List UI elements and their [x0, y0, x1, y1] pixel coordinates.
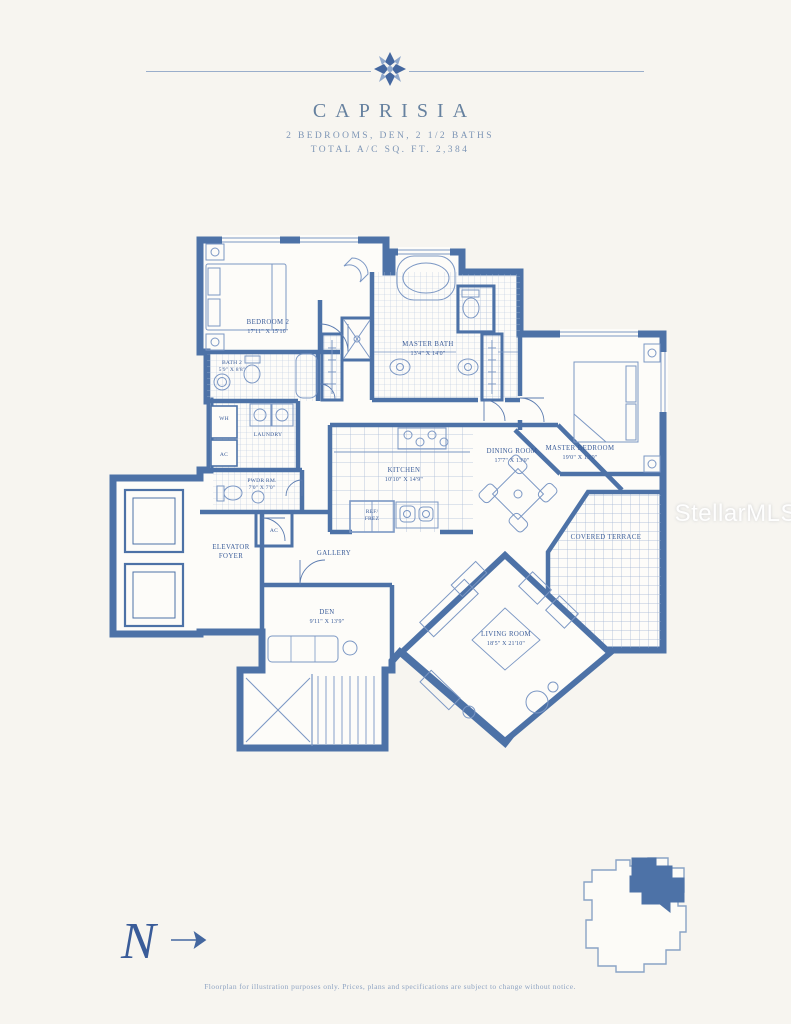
master-bath-label: MASTER BATH	[402, 341, 453, 348]
north-arrow-icon	[171, 933, 205, 947]
floor-plan: BEDROOM 2 17'11" X 15'10" BATH 2 5'9" X …	[100, 228, 680, 763]
gallery-label: GALLERY	[317, 550, 351, 557]
master-bedroom-dims: 19'0" X 13'0"	[563, 455, 598, 461]
laundry-label: LAUNDRY	[254, 432, 282, 438]
building-key-plan	[572, 846, 698, 980]
north-compass: N	[103, 900, 228, 975]
kitchen-dims: 10'10" X 14'9"	[385, 477, 424, 483]
header: CAPRISIA 2 BEDROOMS, DEN, 2 1/2 BATHS TO…	[95, 100, 685, 155]
ac2-label: AC	[270, 528, 278, 534]
stellar-mls-watermark: StellarMLS	[675, 500, 791, 528]
living-room-dims: 18'5" X 21'10"	[487, 641, 526, 647]
disclaimer-text: Floorplan for illustration purposes only…	[95, 982, 685, 991]
wh-label: WH	[219, 416, 229, 422]
ref-label-1: REF/	[366, 509, 379, 515]
ac1-label: AC	[220, 452, 228, 458]
elevator-foyer-label-2: FOYER	[219, 553, 243, 560]
north-letter: N	[120, 913, 159, 970]
bedroom2-dims: 17'11" X 15'10"	[247, 329, 289, 335]
elevator-foyer-label-1: ELEVATOR	[212, 544, 249, 551]
bedroom2-label: BEDROOM 2	[247, 319, 290, 326]
covered-terrace-label: COVERED TERRACE	[571, 534, 642, 541]
page-title: CAPRISIA	[95, 100, 685, 123]
total-sqft-line: TOTAL A/C SQ. FT. 2,384	[95, 145, 685, 155]
powder-room-dims: 7'0" X 7'0"	[249, 485, 276, 491]
kitchen-label: KITCHEN	[388, 467, 421, 474]
den-label: DEN	[319, 609, 334, 616]
living-room-label: LIVING ROOM	[481, 631, 531, 638]
dining-room-dims: 17'7" X 13'0"	[495, 458, 530, 464]
powder-room-label: PWDR RM.	[247, 478, 277, 484]
floral-emblem-icon	[371, 49, 409, 89]
bath2-dims: 5'9" X 8'8"	[219, 367, 246, 373]
bath2-label: BATH 2	[222, 360, 242, 366]
den-dims: 9'11" X 13'9"	[310, 619, 345, 625]
page-subtitle: 2 BEDROOMS, DEN, 2 1/2 BATHS	[95, 131, 685, 141]
master-bath-dims: 13'4" X 14'0"	[411, 351, 446, 357]
master-bedroom-label: MASTER BEDROOM	[546, 445, 615, 452]
ref-label-2: FREZ	[365, 516, 380, 522]
dining-room-label: DINING ROOM	[487, 448, 538, 455]
